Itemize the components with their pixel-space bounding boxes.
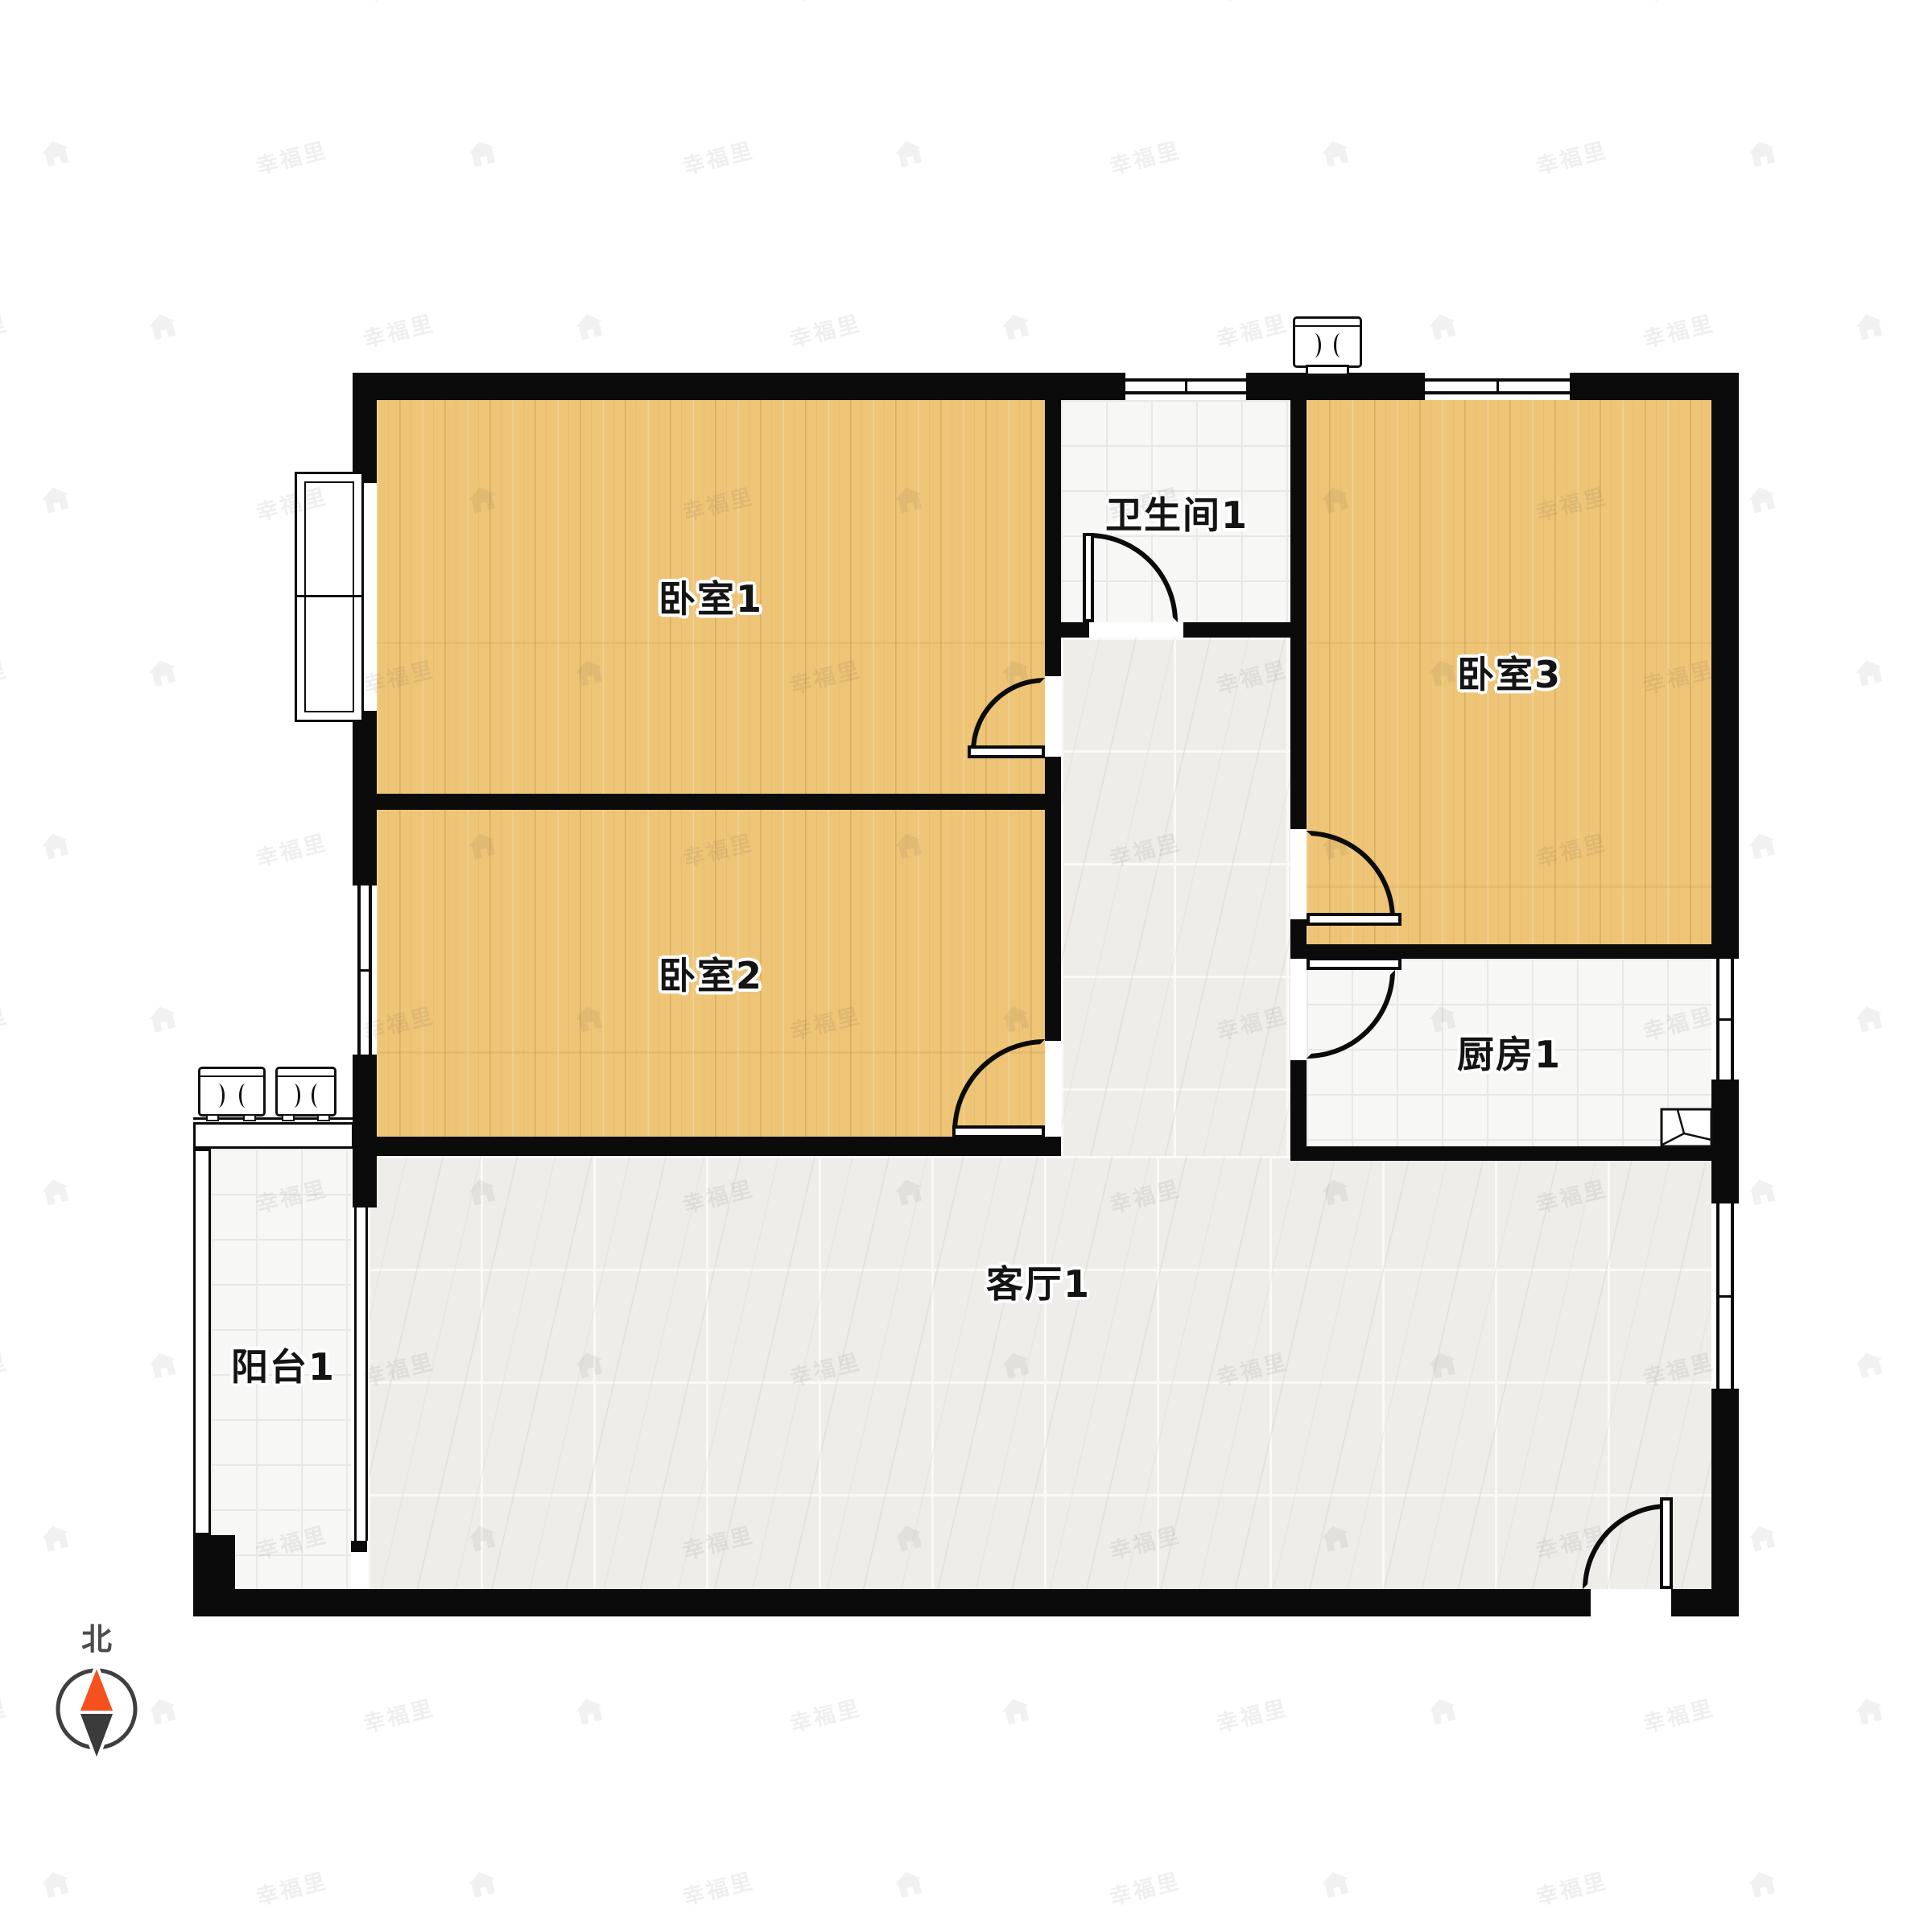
watermark-house-icon [39, 484, 72, 514]
kitchen1-label: 厨房1 [1457, 1026, 1562, 1079]
watermark-house-icon [466, 138, 498, 167]
watermark-text: 幸福里 [253, 825, 331, 873]
wall-left-a [353, 373, 377, 483]
watermark-house-icon [1746, 1868, 1778, 1898]
watermark-house-icon [1853, 1695, 1885, 1725]
wall-top-a [353, 373, 1125, 400]
ac-unit-foot [206, 1114, 219, 1121]
watermark-house-icon [1853, 657, 1885, 687]
watermark-text: 幸福里 [1640, 0, 1718, 7]
wall-kitchen-bottom [1290, 1146, 1711, 1161]
living-room-window [1711, 1203, 1739, 1389]
watermark-text: 幸福里 [1640, 306, 1718, 354]
watermark-house-icon [1319, 1868, 1352, 1898]
watermark-house-icon [1319, 138, 1352, 167]
compass-needle-icon [32, 1649, 161, 1769]
bedroom3-door-leaf [1307, 913, 1402, 926]
entry-door-leaf [1660, 1497, 1673, 1589]
floor-plan-canvas: 卧室1 卧室2 卧室3 卫生间1 厨房1 客厅1 阳台1 北 幸福里幸福里幸福里… [0, 0, 1932, 1932]
wall-bed2-bottom [353, 1137, 1061, 1156]
watermark-text: 幸福里 [1106, 133, 1184, 181]
bedroom1-door-leaf [968, 745, 1045, 758]
wall-bottom-b [1671, 1589, 1739, 1616]
watermark-text: 幸福里 [1533, 1864, 1611, 1912]
ac-unit-1-icon [198, 1067, 266, 1117]
watermark-house-icon [573, 311, 605, 341]
watermark-house-icon [1853, 311, 1885, 341]
ac-unit-2-icon [275, 1067, 336, 1117]
wall-bath-bottom-a [1061, 622, 1089, 638]
watermark-house-icon [1426, 1695, 1459, 1725]
watermark-text: 幸福里 [0, 1344, 10, 1393]
watermark-text: 幸福里 [786, 0, 865, 7]
watermark-house-icon [1746, 138, 1778, 167]
wall-bed1-bed2-divider [353, 794, 1061, 810]
watermark-house-icon [147, 1003, 179, 1033]
watermark-text: 幸福里 [360, 1690, 438, 1739]
living1-label: 客厅1 [986, 1255, 1091, 1308]
watermark-text: 幸福里 [786, 306, 865, 354]
kitchen-door-leaf [1307, 957, 1402, 970]
wall-right-c [1711, 1389, 1739, 1616]
ac-unit-foot [282, 1114, 295, 1121]
wall-right-a [1711, 373, 1739, 959]
watermark-house-icon [39, 830, 72, 860]
wall-right-b [1711, 1080, 1739, 1203]
watermark-house-icon [1000, 311, 1032, 341]
watermark-text: 幸福里 [0, 652, 10, 700]
balcony-top-rail [193, 1122, 354, 1149]
balcony1-label: 阳台1 [231, 1338, 336, 1391]
bathroom1-label: 卫生间1 [1105, 486, 1249, 539]
watermark-house-icon [573, 1695, 605, 1725]
balcony-corner-block [193, 1535, 235, 1616]
watermark-house-icon [1000, 1695, 1032, 1725]
watermark-text: 幸福里 [0, 1690, 10, 1739]
watermark-text: 幸福里 [1213, 0, 1291, 7]
balcony-notch [351, 1541, 367, 1552]
watermark-house-icon [1853, 1349, 1885, 1379]
watermark-text: 幸福里 [679, 1864, 758, 1912]
watermark-house-icon [1853, 1003, 1885, 1033]
watermark-text: 幸福里 [253, 133, 331, 181]
watermark-house-icon [39, 138, 72, 167]
wall-bath-bottom-b [1183, 622, 1290, 638]
watermark-text: 幸福里 [0, 0, 10, 7]
watermark-text: 幸福里 [360, 306, 438, 354]
bedroom2-window [353, 885, 377, 1055]
watermark-house-icon [466, 1868, 498, 1898]
bedroom1-label: 卧室1 [658, 570, 763, 623]
watermark-house-icon [893, 138, 925, 167]
watermark-text: 幸福里 [786, 1690, 865, 1739]
bedroom3-window [1425, 373, 1570, 400]
living1-floor [368, 1156, 1711, 1589]
watermark-text: 幸福里 [253, 1864, 331, 1912]
balcony-left-rail [193, 1149, 211, 1535]
flue-vent-icon [1293, 316, 1362, 368]
watermark-text: 幸福里 [360, 0, 438, 7]
watermark-house-icon [1746, 1522, 1778, 1552]
watermark-text: 幸福里 [1106, 1864, 1184, 1912]
wall-top-b [1246, 373, 1425, 400]
bedroom2-door-leaf [952, 1125, 1045, 1138]
watermark-text: 幸福里 [679, 133, 758, 181]
wall-hall-east-upper [1290, 373, 1307, 829]
watermark-text: 幸福里 [1213, 1690, 1291, 1739]
bay-window-mullion [295, 595, 364, 597]
watermark-text: 幸福里 [1533, 133, 1611, 181]
watermark-text: 幸福里 [1213, 306, 1291, 354]
watermark-house-icon [39, 1522, 72, 1552]
watermark-house-icon [39, 1176, 72, 1206]
watermark-house-icon [1746, 484, 1778, 514]
watermark-text: 幸福里 [0, 998, 10, 1046]
watermark-house-icon [147, 311, 179, 341]
watermark-house-icon [1746, 1176, 1778, 1206]
watermark-house-icon [147, 1349, 179, 1379]
balcony-glass-partition [354, 1207, 368, 1541]
bathroom-window [1125, 373, 1246, 400]
watermark-house-icon [39, 1868, 72, 1898]
watermark-text: 幸福里 [0, 306, 10, 354]
ac-unit-foot [317, 1114, 330, 1121]
bedroom3-label: 卧室3 [1457, 646, 1562, 699]
ac-unit-foot [243, 1114, 256, 1121]
kitchen-window [1711, 959, 1739, 1080]
watermark-text: 幸福里 [1640, 1690, 1718, 1739]
kitchen-sink-icon [1660, 1108, 1713, 1148]
bathroom-door-leaf [1083, 533, 1094, 622]
watermark-house-icon [147, 657, 179, 687]
hallway-floor [1061, 638, 1290, 1161]
watermark-house-icon [1746, 830, 1778, 860]
flue-vent-tab [1306, 365, 1349, 376]
wall-left-c [353, 1055, 377, 1207]
bedroom2-label: 卧室2 [658, 947, 763, 1000]
watermark-house-icon [1426, 311, 1459, 341]
wall-bottom-a [193, 1589, 1591, 1616]
wall-bed1-right-upper [1045, 373, 1061, 676]
watermark-house-icon [893, 1868, 925, 1898]
